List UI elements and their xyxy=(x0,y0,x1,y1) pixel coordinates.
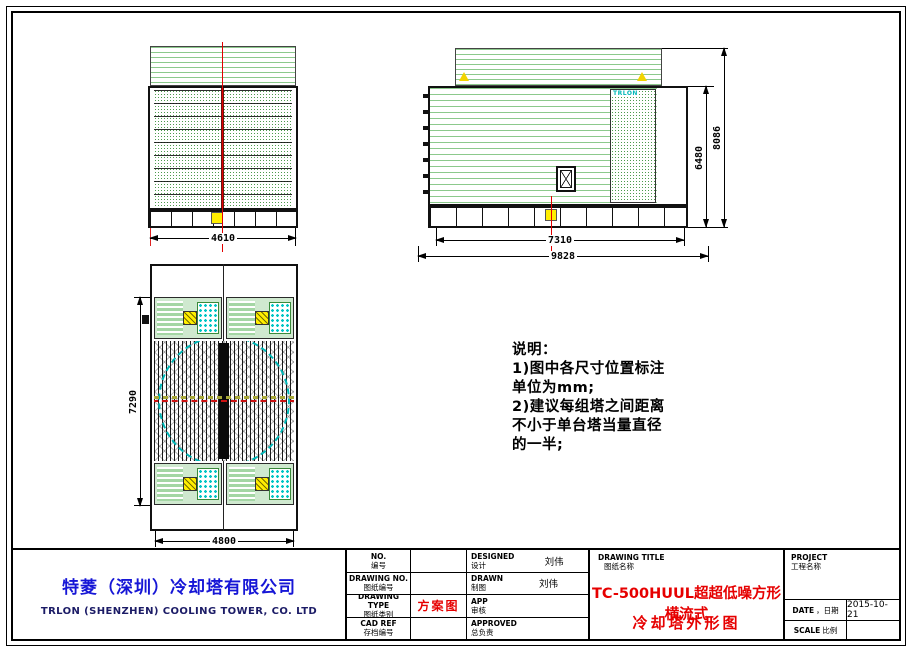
side-end-panel xyxy=(657,88,686,204)
tower-logo: TRLON xyxy=(612,90,639,97)
company-name-cn: 特菱（深圳）冷却塔有限公司 xyxy=(62,573,296,598)
motor-block xyxy=(183,477,197,491)
front-centerline xyxy=(222,42,223,252)
fill-dots xyxy=(197,468,219,500)
motor-block xyxy=(255,477,269,491)
side-overall-height-label: 8086 xyxy=(712,124,723,152)
sign-name: 刘伟 xyxy=(520,554,588,568)
note-line: 1)图中各尺寸位置标注 xyxy=(512,360,724,379)
scale-row: SCALE 比例 xyxy=(785,621,899,639)
dim-arrow-down-icon xyxy=(721,219,727,228)
front-fan-deck xyxy=(150,46,296,86)
fill-dots xyxy=(269,468,291,500)
table-row: DRAWING TYPE 图纸类别 方案图 APP审核 xyxy=(347,595,588,618)
drawing-title-cell: DRAWING TITLE 图纸名称 TC-500HUUL超超低噪方形横流式 冷… xyxy=(590,550,785,639)
drawing-sheet: 4610 TRLON 7310 9828 6480 8086 xyxy=(0,0,912,652)
plan-distribution-panel xyxy=(154,463,222,505)
project-cell: PROJECT 工程名称 xyxy=(785,550,899,600)
drawing-type-value: 方案图 xyxy=(411,595,467,617)
fill-lines xyxy=(157,467,183,501)
side-overall-width-label: 9828 xyxy=(418,251,708,262)
front-casing xyxy=(148,86,298,210)
project-date-scale-cell: PROJECT 工程名称 DATE ，日期 2015-10-21 SCALE 比… xyxy=(785,550,899,639)
note-line: 单位为mm; xyxy=(512,379,724,398)
front-width-label: 4610 xyxy=(150,233,296,244)
side-casing-height-dimension xyxy=(706,86,707,227)
dim-arrow-up-icon xyxy=(721,47,727,56)
scale-value xyxy=(847,621,899,639)
row-label: CAD REF 存档编号 xyxy=(347,618,411,640)
row-label: NO. 编号 xyxy=(347,550,411,572)
table-row: CAD REF 存档编号 APPROVED总负责 xyxy=(347,618,588,640)
title-block-table: NO. 编号 DESIGNED设计 刘伟 DRAWING NO. 图纸编号 DR… xyxy=(347,550,590,639)
drawing-title-line2: 冷却塔外形图 xyxy=(590,612,783,633)
row-label: DRAWING NO. 图纸编号 xyxy=(347,573,411,595)
plan-inlet-block xyxy=(142,315,149,324)
sign-cell: DRAWN制图 刘伟 xyxy=(467,573,588,595)
fan-support-band xyxy=(154,396,294,399)
row-value xyxy=(411,573,467,595)
plan-fan-grille xyxy=(154,341,294,461)
date-value: 2015-10-21 xyxy=(847,600,899,620)
note-line: 说明： xyxy=(512,341,724,360)
motor-block xyxy=(183,311,197,325)
plan-centerline xyxy=(154,400,294,402)
company-cell: 特菱（深圳）冷却塔有限公司 TRLON (SHENZHEN) COOLING T… xyxy=(13,550,347,639)
note-line: 2)建议每组塔之间距离 xyxy=(512,398,724,417)
fill-lines xyxy=(229,467,255,501)
dim-arrow-down-icon xyxy=(703,219,709,228)
row-value xyxy=(411,550,467,572)
title-block: 特菱（深圳）冷却塔有限公司 TRLON (SHENZHEN) COOLING T… xyxy=(13,548,899,639)
fill-dots xyxy=(197,302,219,334)
sign-name: 刘伟 xyxy=(509,576,588,590)
side-overall-height-dimension xyxy=(724,48,725,227)
drawing-title-label-en: DRAWING TITLE xyxy=(598,553,665,562)
front-basin xyxy=(148,210,298,228)
note-line: 的一半; xyxy=(512,436,724,455)
fill-lines xyxy=(229,301,255,335)
company-name-en: TRLON (SHENZHEN) COOLING TOWER, CO. LTD xyxy=(41,606,317,617)
fill-lines xyxy=(157,301,183,335)
sign-cell: DESIGNED设计 刘伟 xyxy=(467,550,588,572)
date-row: DATE ，日期 2015-10-21 xyxy=(785,600,899,621)
plan-distribution-panel xyxy=(226,463,294,505)
plan-length-label: 7290 xyxy=(128,388,139,416)
warning-triangle-icon xyxy=(459,72,469,81)
side-fan-deck xyxy=(455,48,662,86)
table-row: NO. 编号 DESIGNED设计 刘伟 xyxy=(347,550,588,573)
table-row: DRAWING NO. 图纸编号 DRAWN制图 刘伟 xyxy=(347,573,588,596)
warning-triangle-icon xyxy=(637,72,647,81)
plan-distribution-panel xyxy=(154,297,222,339)
side-louver-strip xyxy=(610,89,656,203)
row-value xyxy=(411,618,467,640)
dim-arrow-down-icon xyxy=(137,498,143,507)
side-basin xyxy=(428,206,688,228)
sign-cell: APP审核 xyxy=(467,595,588,617)
side-width-label: 7310 xyxy=(436,235,684,246)
motor-block xyxy=(255,311,269,325)
side-casing-height-label: 6480 xyxy=(694,144,705,172)
plan-length-dimension xyxy=(140,297,141,506)
note-line: 不小于单台塔当量直径 xyxy=(512,417,724,436)
plan-distribution-panel xyxy=(226,297,294,339)
fill-dots xyxy=(269,302,291,334)
access-door-panel xyxy=(560,170,572,188)
dim-arrow-up-icon xyxy=(137,296,143,305)
notes-block: 说明： 1)图中各尺寸位置标注 单位为mm; 2)建议每组塔之间距离 不小于单台… xyxy=(512,341,724,455)
plan-width-label: 4800 xyxy=(150,536,298,547)
drawing-title-label-cn: 图纸名称 xyxy=(598,562,665,571)
dim-extension xyxy=(662,48,728,49)
access-door xyxy=(556,166,576,192)
dim-extension xyxy=(688,86,714,87)
row-label: DRAWING TYPE 图纸类别 xyxy=(347,595,411,617)
side-ladder-rungs xyxy=(423,94,428,194)
dim-arrow-up-icon xyxy=(703,85,709,94)
sign-cell: APPROVED总负责 xyxy=(467,618,588,640)
